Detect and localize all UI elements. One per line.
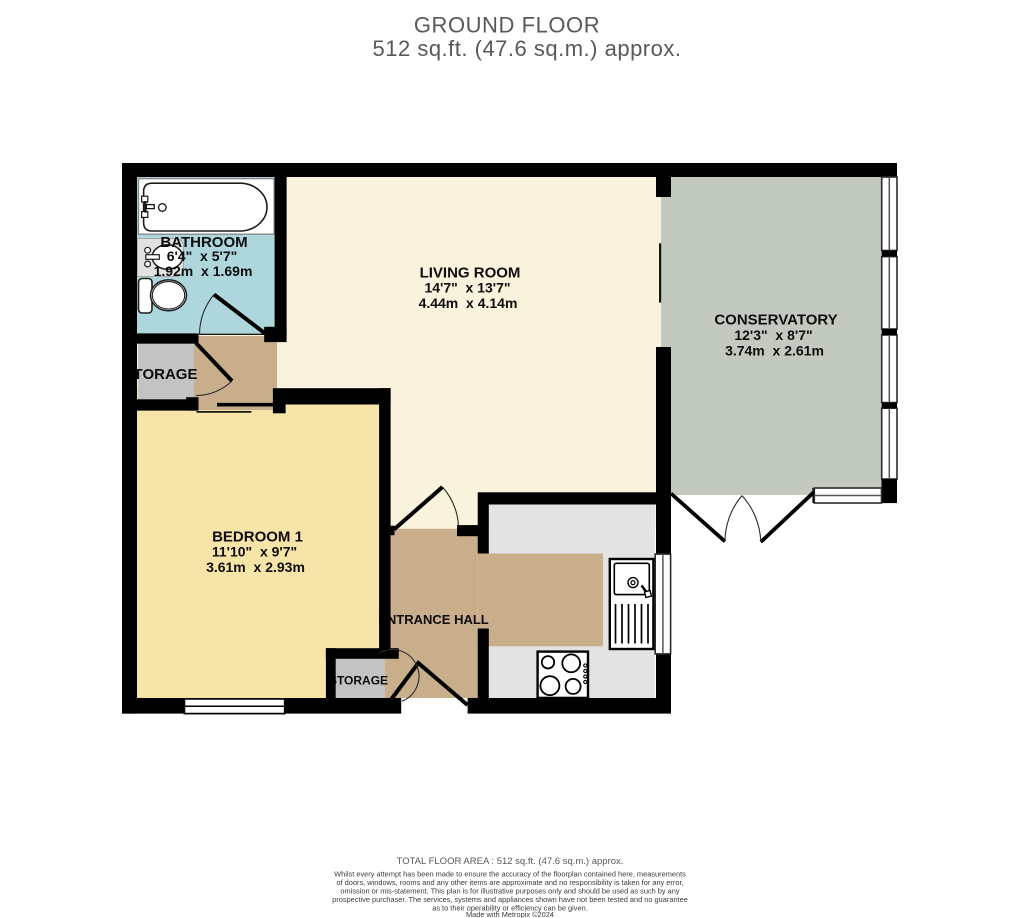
svg-text:3.74m x 2.61m: 3.74m x 2.61m (725, 343, 824, 359)
svg-text:CONSERVATORY: CONSERVATORY (714, 312, 837, 329)
svg-text:STORAGE: STORAGE (329, 674, 388, 688)
svg-text:ENTRANCE HALL: ENTRANCE HALL (378, 612, 489, 627)
svg-text:TOTAL FLOOR AREA : 512 sq.ft.: TOTAL FLOOR AREA : 512 sq.ft. (47.6 sq.m… (397, 856, 624, 867)
svg-text:Made with Metropix ©2024: Made with Metropix ©2024 (466, 910, 554, 918)
svg-text:4.44m x 4.14m: 4.44m x 4.14m (419, 295, 518, 311)
svg-text:512 sq.ft. (47.6 sq.m.) approx: 512 sq.ft. (47.6 sq.m.) approx. (373, 36, 682, 61)
svg-text:11'10" x 9'7": 11'10" x 9'7" (212, 544, 297, 560)
svg-text:1.92m x 1.69m: 1.92m x 1.69m (154, 263, 253, 279)
svg-text:3.61m x 2.93m: 3.61m x 2.93m (206, 559, 305, 575)
svg-text:GROUND FLOOR: GROUND FLOOR (414, 12, 600, 37)
svg-text:6'4" x 5'7": 6'4" x 5'7" (167, 248, 238, 264)
svg-text:14'7" x 13'7": 14'7" x 13'7" (424, 280, 510, 296)
svg-text:12'3" x 8'7": 12'3" x 8'7" (734, 327, 812, 343)
